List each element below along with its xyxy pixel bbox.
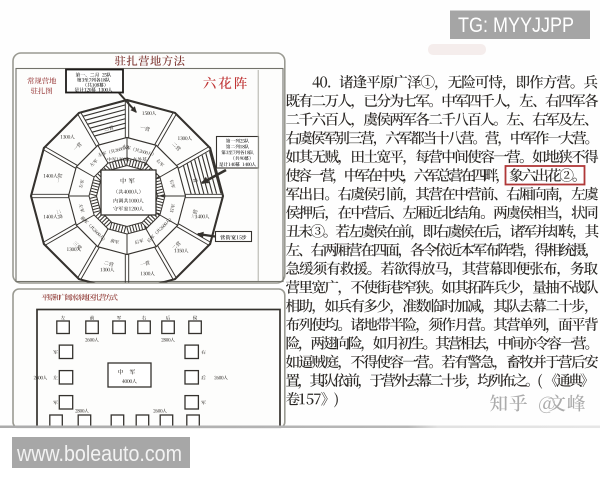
svg-text:www.boleauto.com: www.boleauto.com <box>16 441 182 466</box>
svg-text:TG: MYYJJPP: TG: MYYJJPP <box>458 14 574 37</box>
